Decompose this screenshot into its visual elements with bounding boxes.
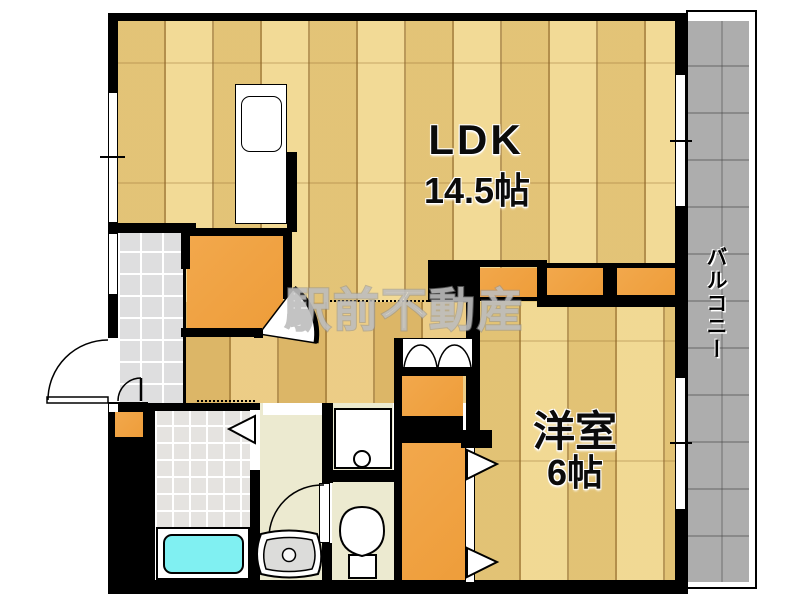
ldk-label: LDK bbox=[396, 116, 556, 164]
washing-machine-pan bbox=[334, 408, 392, 469]
window-tick bbox=[670, 442, 692, 444]
window-tick bbox=[670, 140, 692, 142]
wall bbox=[108, 13, 687, 21]
wall bbox=[394, 416, 463, 443]
wall bbox=[108, 295, 118, 338]
wall bbox=[181, 236, 190, 269]
wall bbox=[322, 543, 332, 582]
hall-closet-door-box bbox=[402, 338, 473, 368]
bathroom-door-gap bbox=[250, 410, 260, 470]
wall bbox=[603, 268, 617, 298]
bedroom-closet-interior bbox=[402, 443, 465, 582]
entrance-door bbox=[47, 340, 108, 403]
shoe-cabinet bbox=[115, 412, 143, 437]
wall bbox=[537, 295, 688, 307]
washroom-entry-gap bbox=[263, 403, 322, 415]
entrance-notch bbox=[109, 404, 118, 412]
washroom-floor bbox=[260, 403, 322, 582]
wall bbox=[148, 403, 155, 582]
washroom-open-boundary bbox=[197, 400, 255, 402]
wall bbox=[181, 228, 292, 236]
wall-closet-box-3 bbox=[617, 268, 675, 298]
pantry-room-floor bbox=[187, 236, 283, 328]
bedroom-size-label: 6帖 bbox=[495, 444, 655, 496]
window-tick bbox=[100, 156, 125, 158]
window-left-entry bbox=[108, 233, 118, 295]
balcony-label: バルコニー bbox=[700, 246, 730, 361]
wall bbox=[108, 13, 118, 92]
wall bbox=[250, 470, 260, 582]
wall bbox=[675, 207, 686, 377]
wall bbox=[181, 328, 262, 337]
wall bbox=[675, 510, 686, 585]
watermark-text: 駅前不動産 bbox=[285, 274, 525, 340]
wall bbox=[148, 403, 260, 411]
kitchen-sink bbox=[241, 96, 282, 152]
wall bbox=[397, 368, 473, 376]
wall bbox=[461, 430, 492, 448]
wall bbox=[287, 152, 297, 232]
wall bbox=[330, 470, 395, 482]
wall bbox=[183, 269, 186, 331]
wall bbox=[108, 580, 688, 594]
ldk-size-label: 14.5帖 bbox=[377, 162, 577, 214]
toilet-door-leaf bbox=[319, 483, 330, 543]
wall bbox=[183, 330, 186, 403]
wall-closet-box-2 bbox=[547, 268, 603, 295]
hall-closet-interior bbox=[402, 376, 463, 416]
toilet-room-floor bbox=[332, 482, 394, 580]
bedroom-closet-door-strip bbox=[465, 448, 475, 582]
entrance-tile-floor bbox=[118, 233, 183, 407]
floor-plan: LDK 14.5帖 洋室 6帖 バルコニー 駅前不動産 bbox=[0, 0, 800, 600]
bathtub bbox=[163, 534, 244, 574]
entrance-doorway-gap bbox=[108, 338, 118, 402]
wall bbox=[675, 13, 686, 74]
